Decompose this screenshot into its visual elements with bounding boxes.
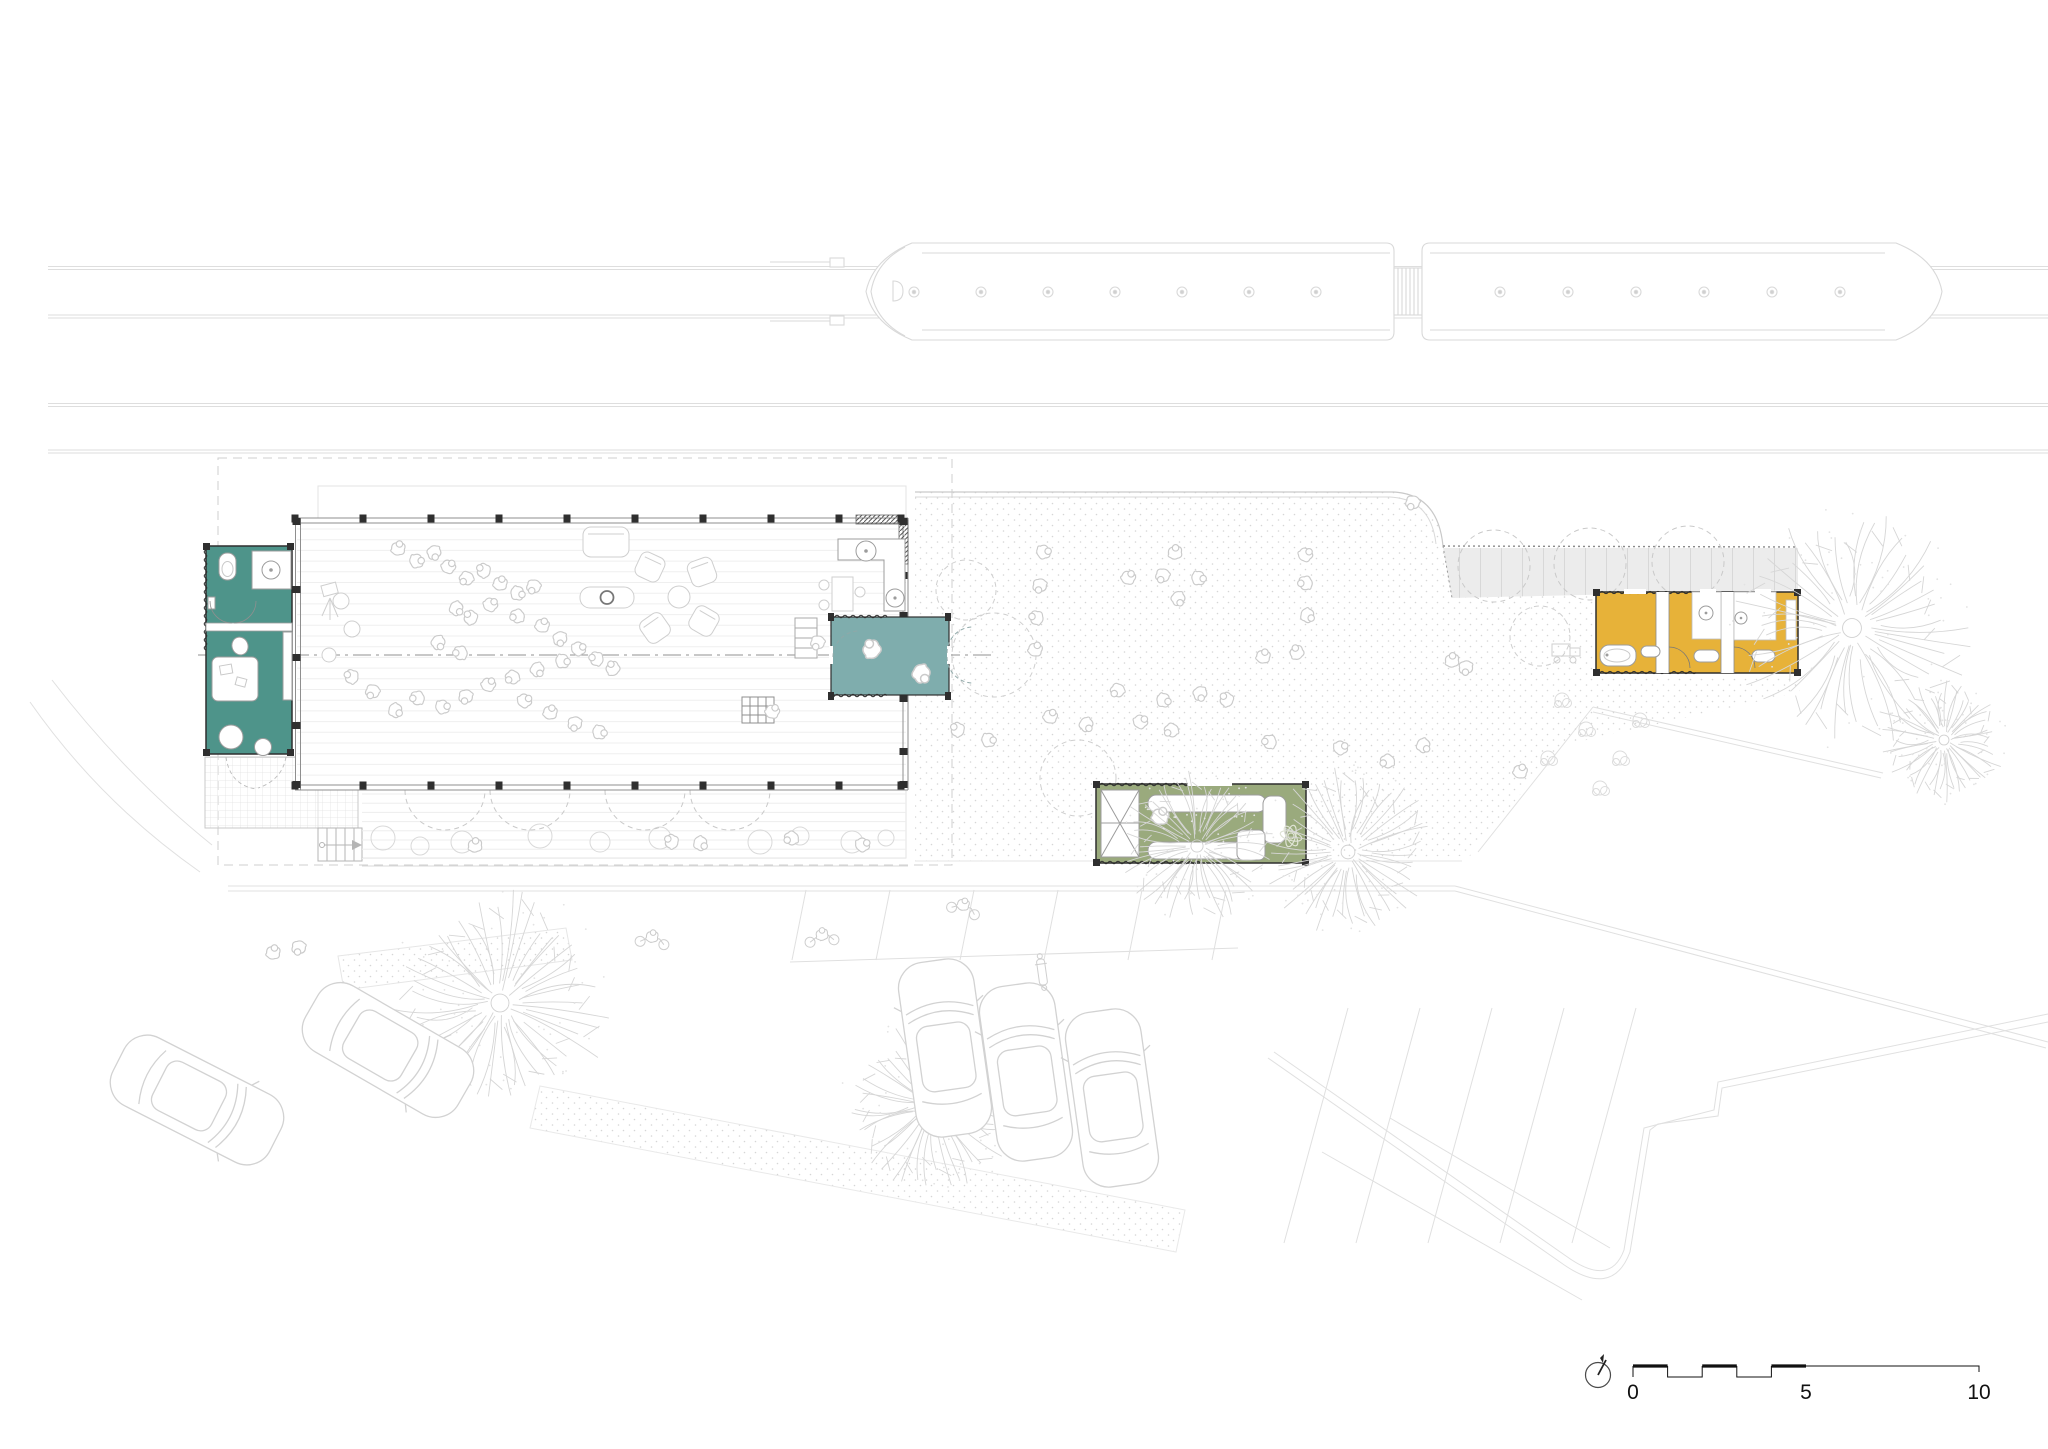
car [289,967,486,1133]
person-figure [265,944,281,961]
person-figure [781,829,800,848]
pouf [668,586,690,608]
sofa [583,527,629,557]
entry-stairs [318,828,362,861]
scale-label-0: 0 [1627,1381,1639,1404]
scale-label-10: 10 [1967,1381,1990,1404]
tree [1882,680,2006,806]
container-left [203,543,294,756]
canopy [1443,526,1798,602]
scale-bar: 0 5 10 [1627,1366,1991,1404]
car [1055,1005,1169,1192]
cyclist-figure [645,929,659,943]
deck [362,780,908,866]
side-table [832,577,853,611]
cyclist-figure [956,896,971,912]
stool [344,621,360,637]
site-plan-page: 0 5 10 [0,0,2048,1449]
folding-door-arcs [405,790,770,830]
bathtub [1600,645,1636,666]
person-figure [291,940,307,957]
person-figure [691,834,710,853]
desk [212,657,258,701]
car [98,1020,296,1180]
stool [219,725,243,749]
site-plan-canvas: 0 5 10 [0,0,2048,1449]
toilet [1641,646,1660,657]
stool [333,593,349,609]
partition-wall [206,623,292,631]
cyclist-figure [815,927,828,941]
stool [322,648,336,662]
tram [770,243,1942,340]
stool [255,739,272,756]
plot-boundary [1268,1022,2048,1279]
north-indicator [1586,1354,1611,1388]
toilet [1694,650,1719,662]
shelf [283,632,292,700]
bench [1263,796,1286,843]
toilet [219,553,236,580]
scale-label-5: 5 [1800,1381,1812,1404]
person-figure [853,835,872,854]
container-mid-fill [831,617,949,695]
